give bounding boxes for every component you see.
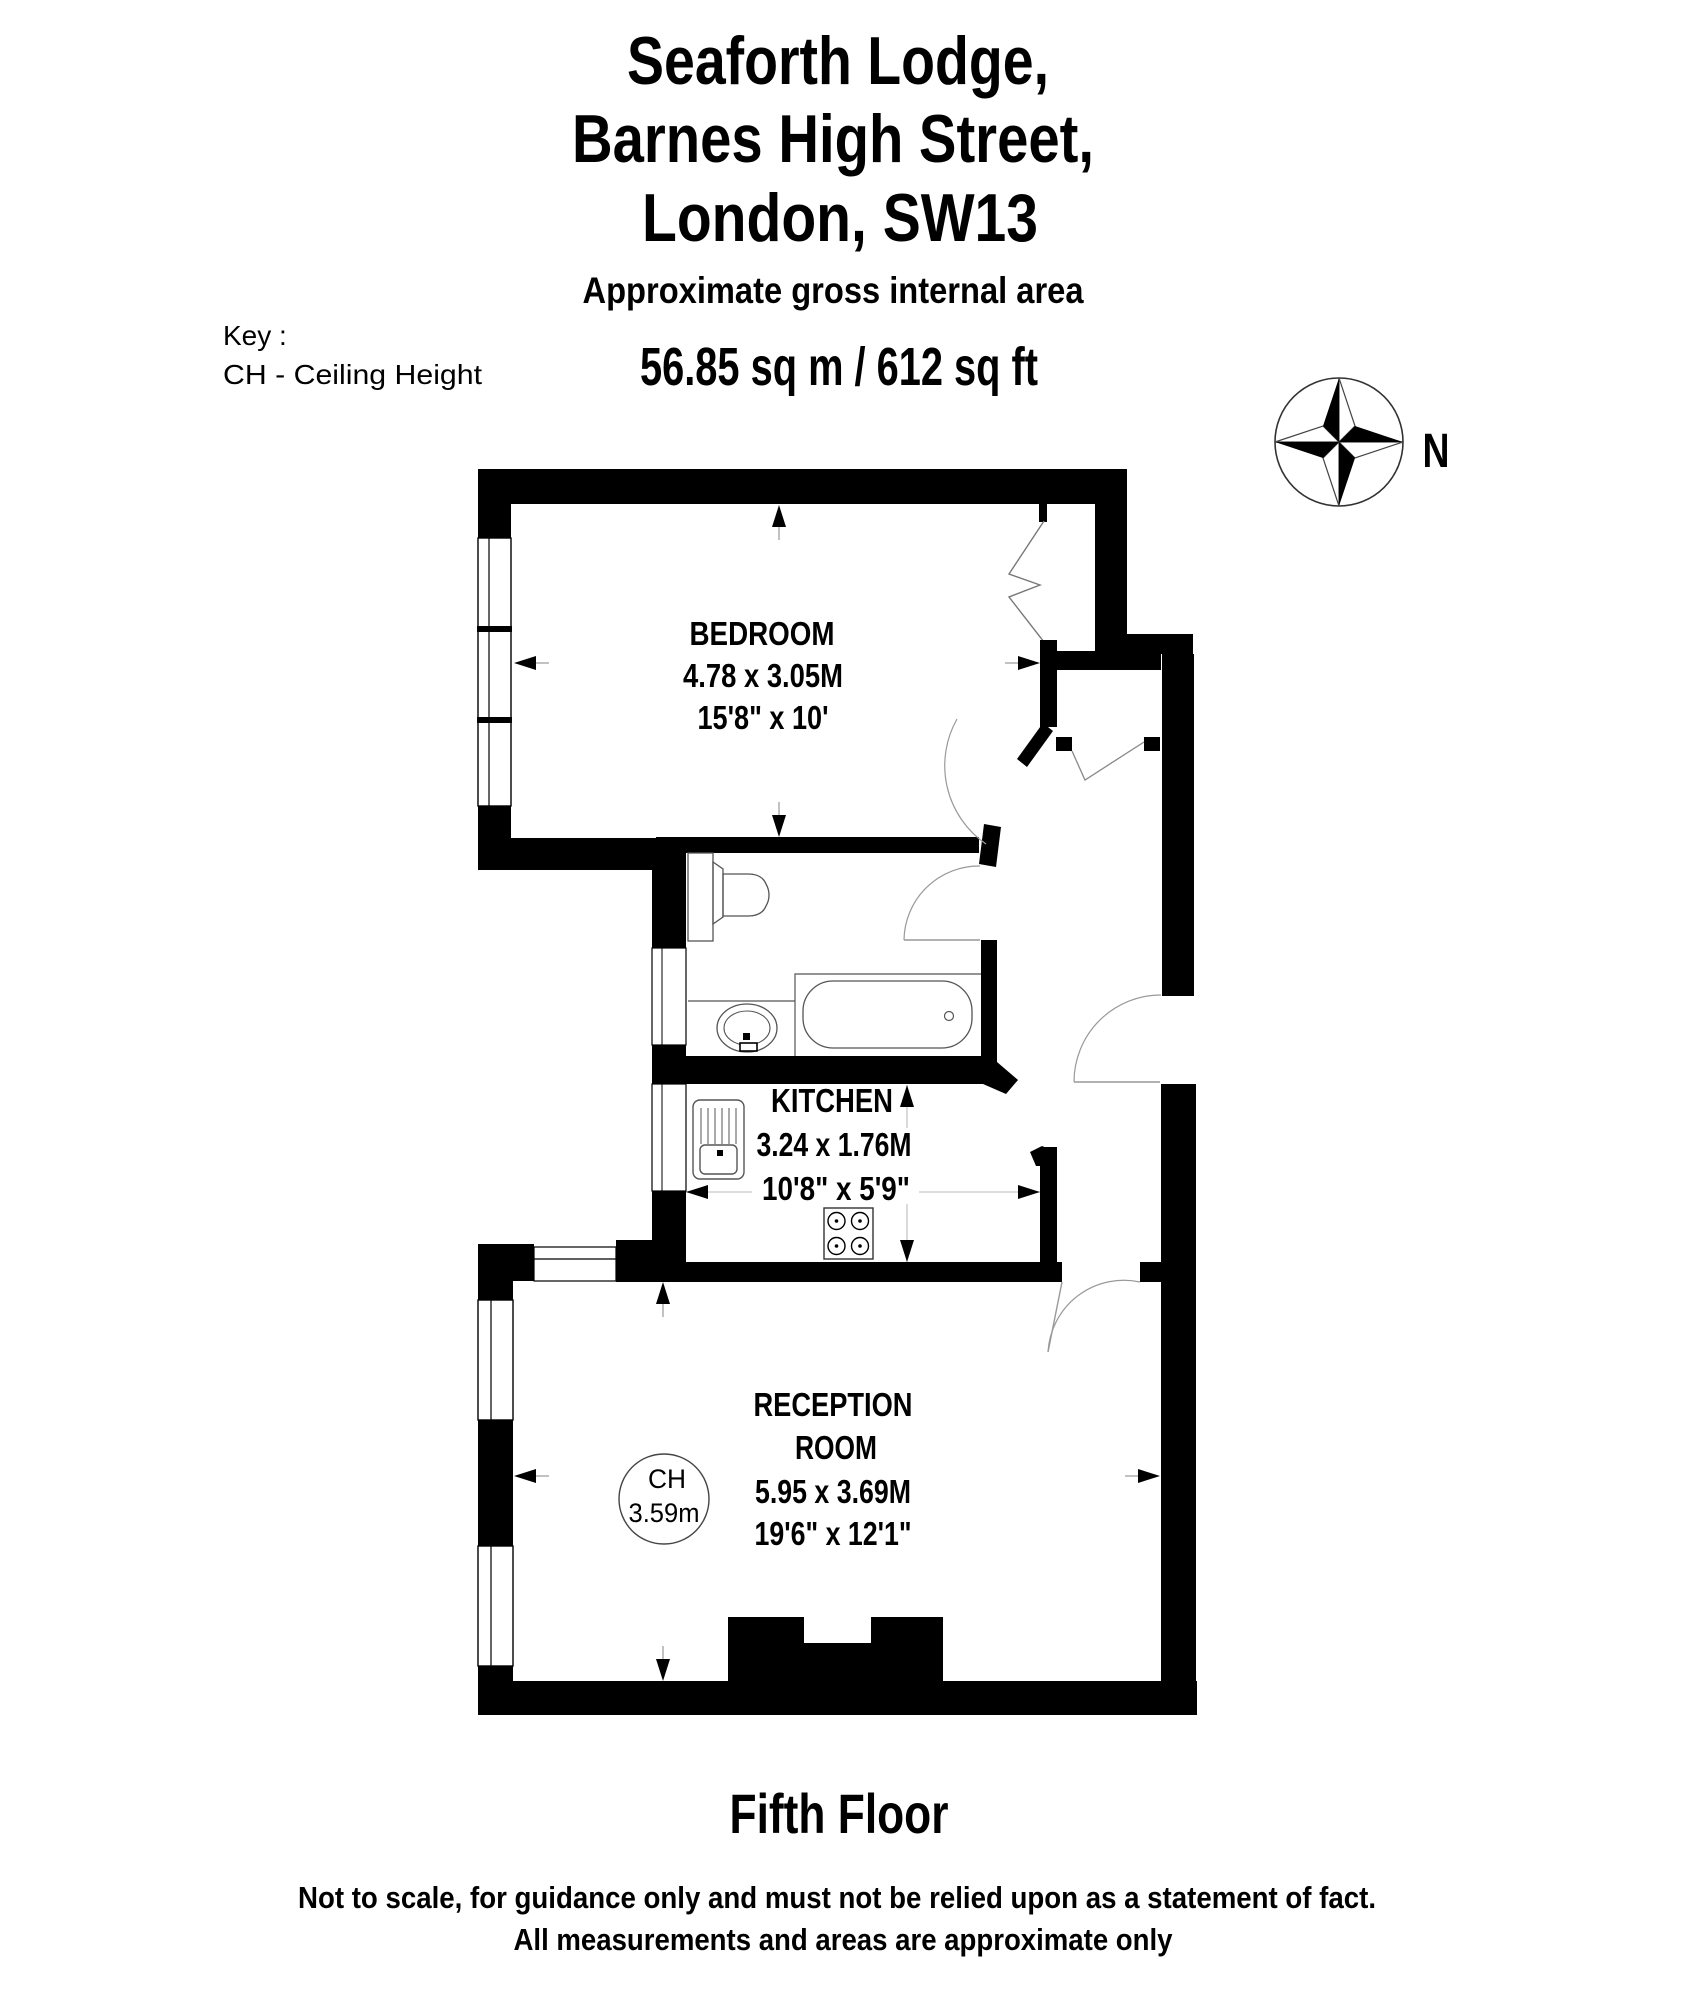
svg-text:KITCHEN: KITCHEN: [771, 1082, 893, 1119]
svg-text:BEDROOM: BEDROOM: [690, 615, 835, 652]
svg-text:Key :: Key :: [223, 320, 287, 351]
svg-text:Fifth Floor: Fifth Floor: [730, 1782, 949, 1845]
svg-text:ROOM: ROOM: [795, 1429, 877, 1466]
svg-text:London, SW13: London, SW13: [642, 180, 1038, 256]
svg-text:Seaforth Lodge,: Seaforth Lodge,: [627, 23, 1049, 99]
svg-text:Not to scale, for guidance onl: Not to scale, for guidance only and must…: [298, 1880, 1376, 1915]
svg-text:3.24 x 1.76M: 3.24 x 1.76M: [757, 1126, 912, 1163]
svg-text:All measurements and areas are: All measurements and areas are approxima…: [514, 1922, 1174, 1957]
svg-text:4.78 x 3.05M: 4.78 x 3.05M: [683, 657, 843, 694]
svg-text:3.59m: 3.59m: [629, 1498, 700, 1528]
svg-text:CH: CH: [648, 1464, 686, 1494]
svg-text:Approximate gross internal are: Approximate gross internal area: [583, 270, 1084, 311]
svg-text:15'8" x 10': 15'8" x 10': [698, 699, 829, 736]
svg-text:Barnes High Street,: Barnes High Street,: [572, 101, 1094, 177]
svg-text:19'6" x 12'1": 19'6" x 12'1": [755, 1515, 912, 1552]
svg-text:56.85 sq m / 612 sq ft: 56.85 sq m / 612 sq ft: [640, 337, 1038, 397]
svg-text:10'8" x 5'9": 10'8" x 5'9": [762, 1170, 910, 1207]
svg-text:RECEPTION: RECEPTION: [754, 1386, 913, 1423]
svg-text:5.95 x 3.69M: 5.95 x 3.69M: [755, 1473, 911, 1510]
svg-text:N: N: [1423, 425, 1450, 478]
svg-text:CH - Ceiling Height: CH - Ceiling Height: [223, 359, 482, 390]
